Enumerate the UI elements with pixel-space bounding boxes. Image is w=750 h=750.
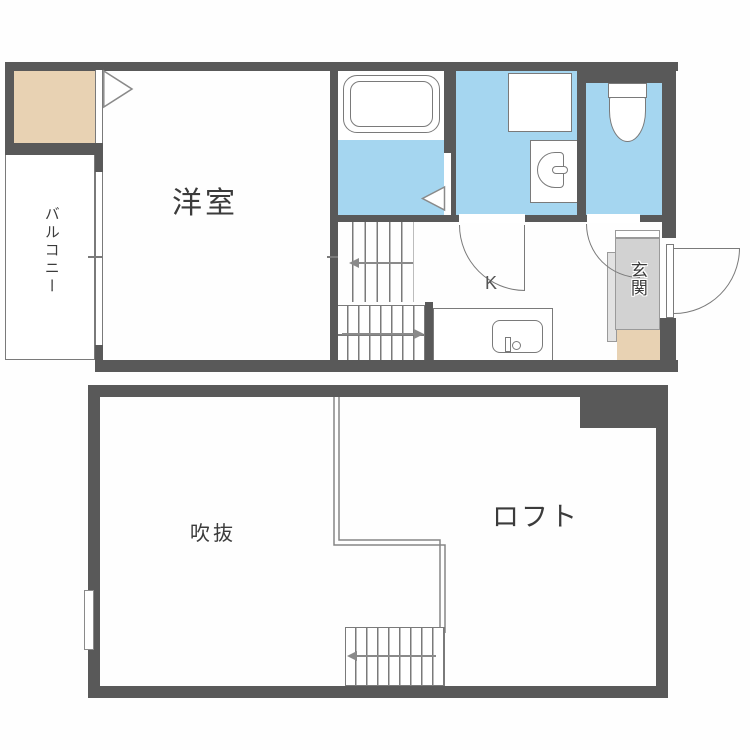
wall <box>662 62 676 238</box>
front-door-leaf <box>666 244 674 318</box>
loft-edge-lines <box>330 395 455 640</box>
wall <box>330 62 338 372</box>
wall <box>88 385 100 698</box>
washbasin-faucet-icon <box>552 166 568 174</box>
loft-stairs-arrow <box>354 655 436 657</box>
loft-stairs-arrowhead-icon <box>347 651 357 661</box>
loft-window <box>84 590 94 650</box>
balcony-window <box>95 172 103 345</box>
wall <box>95 155 103 172</box>
loft-corner-block <box>580 390 668 428</box>
entrance-label: 玄関 <box>628 261 646 297</box>
washing-machine-pan-icon <box>508 73 572 132</box>
wall <box>656 385 668 698</box>
wall <box>577 62 586 222</box>
wall <box>660 318 676 372</box>
kitchen-label: K <box>485 274 497 293</box>
bathtub-inner-icon <box>350 81 433 127</box>
balcony-label: バルコニー <box>43 206 59 296</box>
toilet-door-opening <box>587 214 640 223</box>
loft-label: ロフト <box>492 503 579 531</box>
stairs-lower-arrowhead-icon <box>414 329 424 339</box>
wall <box>5 143 103 155</box>
floorplan-canvas: 洋室 バルコニー K 玄関 吹抜 ロフト <box>0 0 750 750</box>
kitchen-faucet-icon <box>505 337 511 352</box>
balcony-window-tick <box>88 256 103 258</box>
closet-area <box>13 70 95 143</box>
wall <box>5 62 14 155</box>
front-door-arc <box>674 248 740 314</box>
kitchen-door-opening <box>459 214 525 223</box>
wall <box>88 686 668 698</box>
stairs-lower-arrow <box>342 333 416 335</box>
wall <box>95 360 678 372</box>
wall <box>425 302 433 365</box>
stairs-upper-arrowhead-icon <box>349 258 359 268</box>
western-room-label: 洋室 <box>172 188 238 220</box>
void-label: 吹抜 <box>190 524 236 545</box>
bath-door-triangle-icon <box>421 186 446 211</box>
kitchen-knob-icon <box>512 341 521 350</box>
stairs-upper-arrow <box>356 262 413 264</box>
closet-door-strip <box>95 70 103 143</box>
entrance-closet <box>617 330 660 360</box>
toilet-tank-icon <box>608 83 647 98</box>
wall-tick <box>327 256 338 258</box>
window-triangle-icon <box>103 70 135 108</box>
